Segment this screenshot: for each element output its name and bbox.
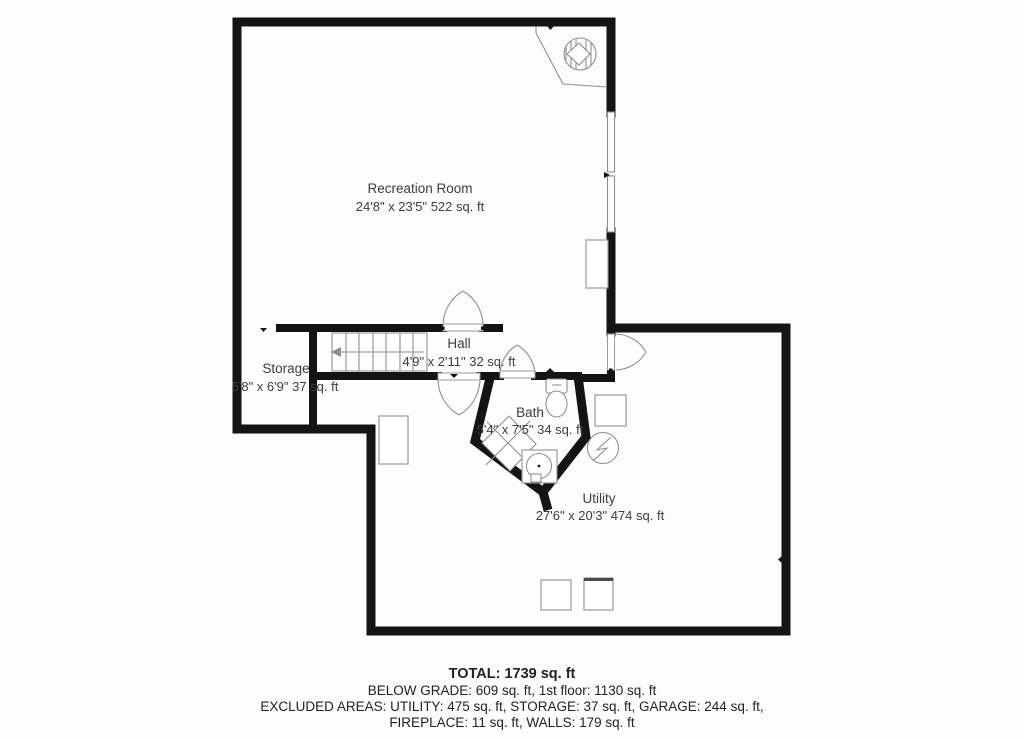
- appliance-icon: [379, 416, 408, 464]
- toilet-icon: [546, 379, 567, 417]
- sink-icon: [522, 450, 557, 483]
- room-dim-bath: 5'4" x 7'5" 34 sq. ft: [477, 422, 584, 437]
- door-swing-icon: [608, 330, 647, 372]
- below-grade-area: BELOW GRADE: 609 sq. ft, 1st floor: 1130…: [0, 683, 1024, 699]
- excluded-areas-line1: EXCLUDED AREAS: UTILITY: 475 sq. ft, STO…: [0, 699, 1024, 715]
- door-swing-icon: [441, 291, 485, 331]
- fireplace-icon: [536, 26, 607, 87]
- water-heater-icon: [588, 433, 619, 464]
- room-dim-storage: 5'8" x 6'9" 37 sq. ft: [232, 379, 339, 394]
- room-dim-hall: 4'9" x 2'11" 32 sq. ft: [403, 354, 516, 369]
- room-label-recreation: Recreation Room: [367, 181, 472, 196]
- area-summary: TOTAL: 1739 sq. ft BELOW GRADE: 609 sq. …: [0, 666, 1024, 731]
- room-label-utility: Utility: [583, 491, 616, 506]
- room-label-hall: Hall: [447, 336, 470, 351]
- room-label-storage: Storage: [262, 361, 309, 376]
- window-icon: [604, 112, 615, 232]
- room-dim-utility: 27'6" x 20'3" 474 sq. ft: [536, 508, 665, 523]
- room-dim-recreation: 24'8" x 23'5" 522 sq. ft: [356, 199, 485, 214]
- floor-plan-page: Recreation Room 24'8" x 23'5" 522 sq. ft…: [0, 0, 1024, 738]
- door-swing-icon: [438, 373, 480, 415]
- furnace-icon: [595, 395, 626, 426]
- room-label-bath: Bath: [516, 405, 544, 420]
- total-area: TOTAL: 1739 sq. ft: [0, 666, 1024, 683]
- washer-dryer-icon: [541, 578, 613, 610]
- appliance-icon: [586, 240, 608, 288]
- excluded-areas-line2: FIREPLACE: 11 sq. ft, WALLS: 179 sq. ft: [0, 715, 1024, 731]
- floor-plan-drawing: Recreation Room 24'8" x 23'5" 522 sq. ft…: [0, 0, 1024, 660]
